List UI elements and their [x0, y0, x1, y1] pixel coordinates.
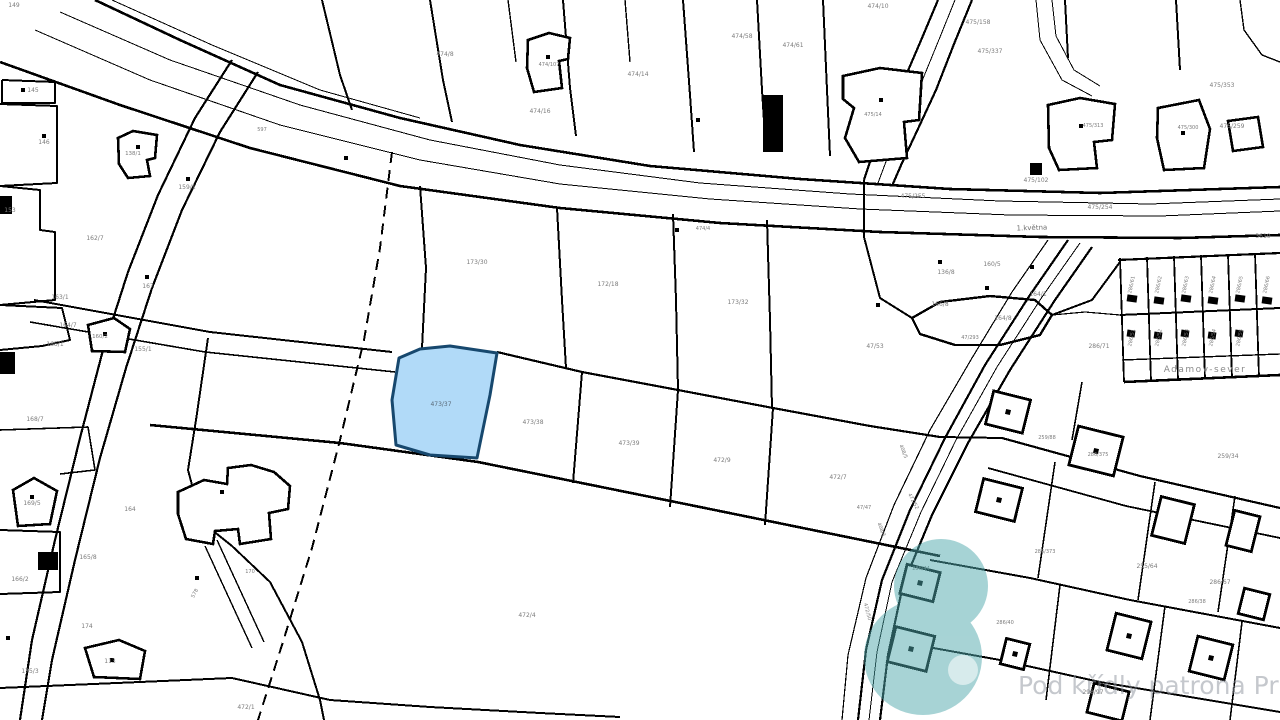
parcel-boundary-line [940, 437, 1002, 438]
parcel-number-label: 473/39 [618, 440, 639, 447]
parcel-number-label: 163/1 [51, 294, 68, 301]
parcel-number-label: 136/8 [937, 269, 954, 276]
parcel-number-label: 172/18 [597, 281, 618, 288]
building-filled [0, 352, 15, 374]
parcel-number-label: 155/1 [134, 346, 151, 353]
building-filled [1262, 296, 1273, 304]
building-symbol-dot [220, 490, 224, 494]
parcel-number-label: 474/16 [529, 108, 550, 115]
highlighted-parcel-number: 473/37 [430, 401, 451, 408]
parcel-number-label: 474/107 [539, 62, 560, 68]
cadastral-map-viewport: 473/37149145146138/1159/1597153162/71671… [0, 0, 1280, 720]
building-symbol-dot [6, 636, 10, 640]
building-symbol-dot [145, 275, 149, 279]
parcel-number-label: 286/67 [1209, 579, 1230, 586]
street-name-label: Adamov-sever [1164, 365, 1247, 375]
parcel-number-label: 166/2 [11, 576, 28, 583]
parcel-number-label: 475/259 [1220, 123, 1245, 130]
building-symbol-dot [879, 98, 883, 102]
parcel-number-label: 597 [257, 127, 267, 133]
building-symbol-dot [195, 576, 199, 580]
parcel-number-label: 145 [27, 87, 39, 94]
parcel-number-label: 164/7 [59, 322, 76, 329]
building-symbol-dot [546, 55, 550, 59]
parcel-number-label: 160/5 [983, 261, 1000, 268]
parcel-number-label: 473/38 [522, 419, 543, 426]
parcel-number-label: 255/64 [1136, 563, 1157, 570]
building-symbol-dot [1181, 131, 1185, 135]
parcel-number-label: 169/5 [23, 500, 40, 507]
parcel-number-label: 286/375 [1088, 452, 1109, 458]
building-symbol-dot [30, 495, 34, 499]
building-filled [1154, 296, 1165, 304]
parcel-number-label: 160/2 [92, 334, 108, 340]
parcel-number-label: 3610 [1255, 233, 1270, 240]
parcel-number-label: 170 [245, 569, 255, 575]
building-symbol-dot [876, 303, 880, 307]
parcel-number-label: 475/254 [1088, 204, 1113, 211]
parcel-number-label: 47/47 [857, 505, 871, 511]
parcel-number-label: 474/8 [436, 51, 453, 58]
cadastral-map: 473/37149145146138/1159/1597153162/71671… [0, 0, 1280, 720]
building-filled [1127, 294, 1138, 302]
watermark-text: Pod křídly patrona Prahy [1018, 671, 1280, 700]
building-symbol-dot [136, 145, 140, 149]
parcel-number-label: 472/9 [713, 457, 730, 464]
parcel-number-label: 475/353 [1210, 82, 1235, 89]
parcel-number-label: 474/61 [782, 42, 803, 49]
parcel-number-label: 259/34 [1217, 453, 1238, 460]
parcel-number-label: 173/32 [727, 299, 748, 306]
parcel-number-label: 475/14 [864, 112, 882, 118]
parcel-number-label: 174 [81, 623, 93, 630]
parcel-number-label: 286/40 [996, 620, 1014, 626]
parcel-number-label: 475/158 [966, 19, 991, 26]
building-symbol-dot [344, 156, 348, 160]
building-filled [38, 552, 58, 570]
parcel-number-label: 164/8 [994, 315, 1011, 322]
parcel-number-label: 168/7 [26, 416, 43, 423]
parcel-number-label: 166/8 [931, 301, 948, 308]
building-filled [1235, 294, 1246, 302]
building-filled [1181, 294, 1192, 302]
building-symbol-dot [1030, 265, 1034, 269]
building-symbol-dot [21, 88, 25, 92]
building-symbol-dot [696, 118, 700, 122]
parcel-number-label: 474/58 [731, 33, 752, 40]
parcel-number-label: 475/255 [901, 193, 926, 200]
parcel-number-label: 175/3 [21, 668, 38, 675]
building-filled [1208, 296, 1219, 304]
building-symbol-dot [186, 177, 190, 181]
parcel-number-label: 167 [142, 283, 154, 290]
parcel-number-label: 259/88 [1038, 435, 1056, 441]
parcel-number-label: 164/1 [1029, 291, 1046, 298]
parcel-number-label: 146 [38, 139, 50, 146]
parcel-number-label: 159/1 [178, 184, 195, 191]
parcel-number-label: 173/30 [466, 259, 487, 266]
parcel-number-label: 286/38 [1188, 599, 1206, 605]
parcel-number-label: 153 [4, 207, 16, 214]
parcel-number-label: 472/1 [237, 704, 254, 711]
building-symbol-dot [938, 260, 942, 264]
parcel-number-label: 149 [8, 2, 20, 9]
house-footprint [985, 391, 1030, 433]
parcel-number-label: 286/71 [1088, 343, 1109, 350]
parcel-number-label: 474/4 [696, 226, 710, 232]
street-name-label: 1.května [1016, 223, 1047, 232]
parcel-number-label: 47/293 [961, 335, 979, 341]
parcel-number-label: 47/53 [866, 343, 883, 350]
house-footprint [1107, 613, 1151, 659]
parcel-number-label: 472/4 [518, 612, 535, 619]
parcel-number-label: 165/1 [46, 341, 63, 348]
parcel-number-label: 475/102 [1024, 177, 1049, 184]
parcel-number-label: 113 [104, 658, 116, 665]
parcel-number-label: 165/8 [79, 554, 96, 561]
parcel-number-label: 286/373 [1035, 549, 1056, 555]
parcel-number-label: 475/300 [1178, 125, 1199, 131]
house-footprint [1000, 638, 1030, 669]
parcel-number-label: 138/1 [125, 151, 141, 157]
parcel-number-label: 475/313 [1083, 123, 1104, 129]
parcel-number-label: 164 [124, 506, 136, 513]
building-filled [1030, 163, 1042, 175]
parcel-number-label: 472/7 [829, 474, 846, 481]
watermark-logo-notch [948, 655, 978, 685]
building-symbol-dot [985, 286, 989, 290]
parcel-number-label: 474/14 [627, 71, 648, 78]
building-symbol-dot [675, 228, 679, 232]
house-footprint [1238, 588, 1270, 620]
parcel-number-label: 474/10 [867, 3, 888, 10]
building-filled [763, 95, 783, 152]
parcel-number-label: 475/337 [978, 48, 1003, 55]
parcel-number-label: 162/7 [86, 235, 103, 242]
building-symbol-dot [42, 134, 46, 138]
